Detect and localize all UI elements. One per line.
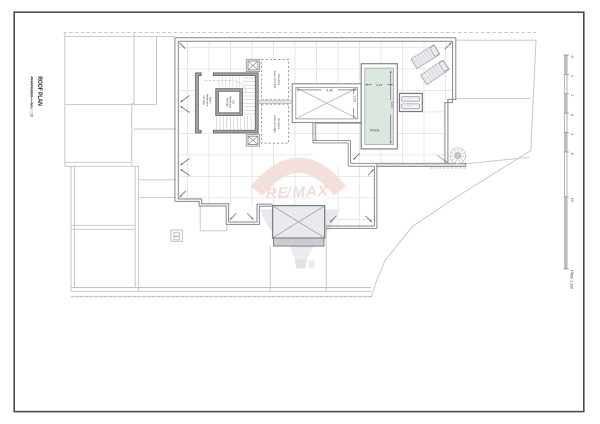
svg-text:2: 2 <box>570 94 574 96</box>
svg-text:Area 1m High: Area 1m High <box>273 71 277 89</box>
svg-text:2.27: 2.27 <box>376 83 382 87</box>
svg-text:1: 1 <box>570 75 574 77</box>
svg-text:Area 1m High: Area 1m High <box>273 115 277 133</box>
svg-text:0: 0 <box>570 56 574 58</box>
svg-text:1m high: 1m high <box>202 95 206 105</box>
svg-text:2.20: 2.20 <box>352 95 356 101</box>
svg-text:Mts 1:100: Mts 1:100 <box>570 274 574 290</box>
svg-text:4: 4 <box>570 133 574 135</box>
svg-text:6.00: 6.00 <box>390 102 394 108</box>
svg-text:4.40: 4.40 <box>326 88 333 92</box>
svg-text:MAX: MAX <box>292 183 329 202</box>
svg-text:ROOF PLAN: ROOF PLAN <box>36 76 42 106</box>
svg-text:3: 3 <box>570 114 574 116</box>
svg-text:PROPOSED: PROPOSED <box>30 77 35 97</box>
svg-text:POOL: POOL <box>370 128 380 132</box>
svg-text:10: 10 <box>570 198 574 202</box>
svg-text:1m high: 1m high <box>225 97 229 107</box>
svg-text:Scale 1:100: Scale 1:100 <box>30 103 34 118</box>
svg-text:5: 5 <box>570 153 574 155</box>
